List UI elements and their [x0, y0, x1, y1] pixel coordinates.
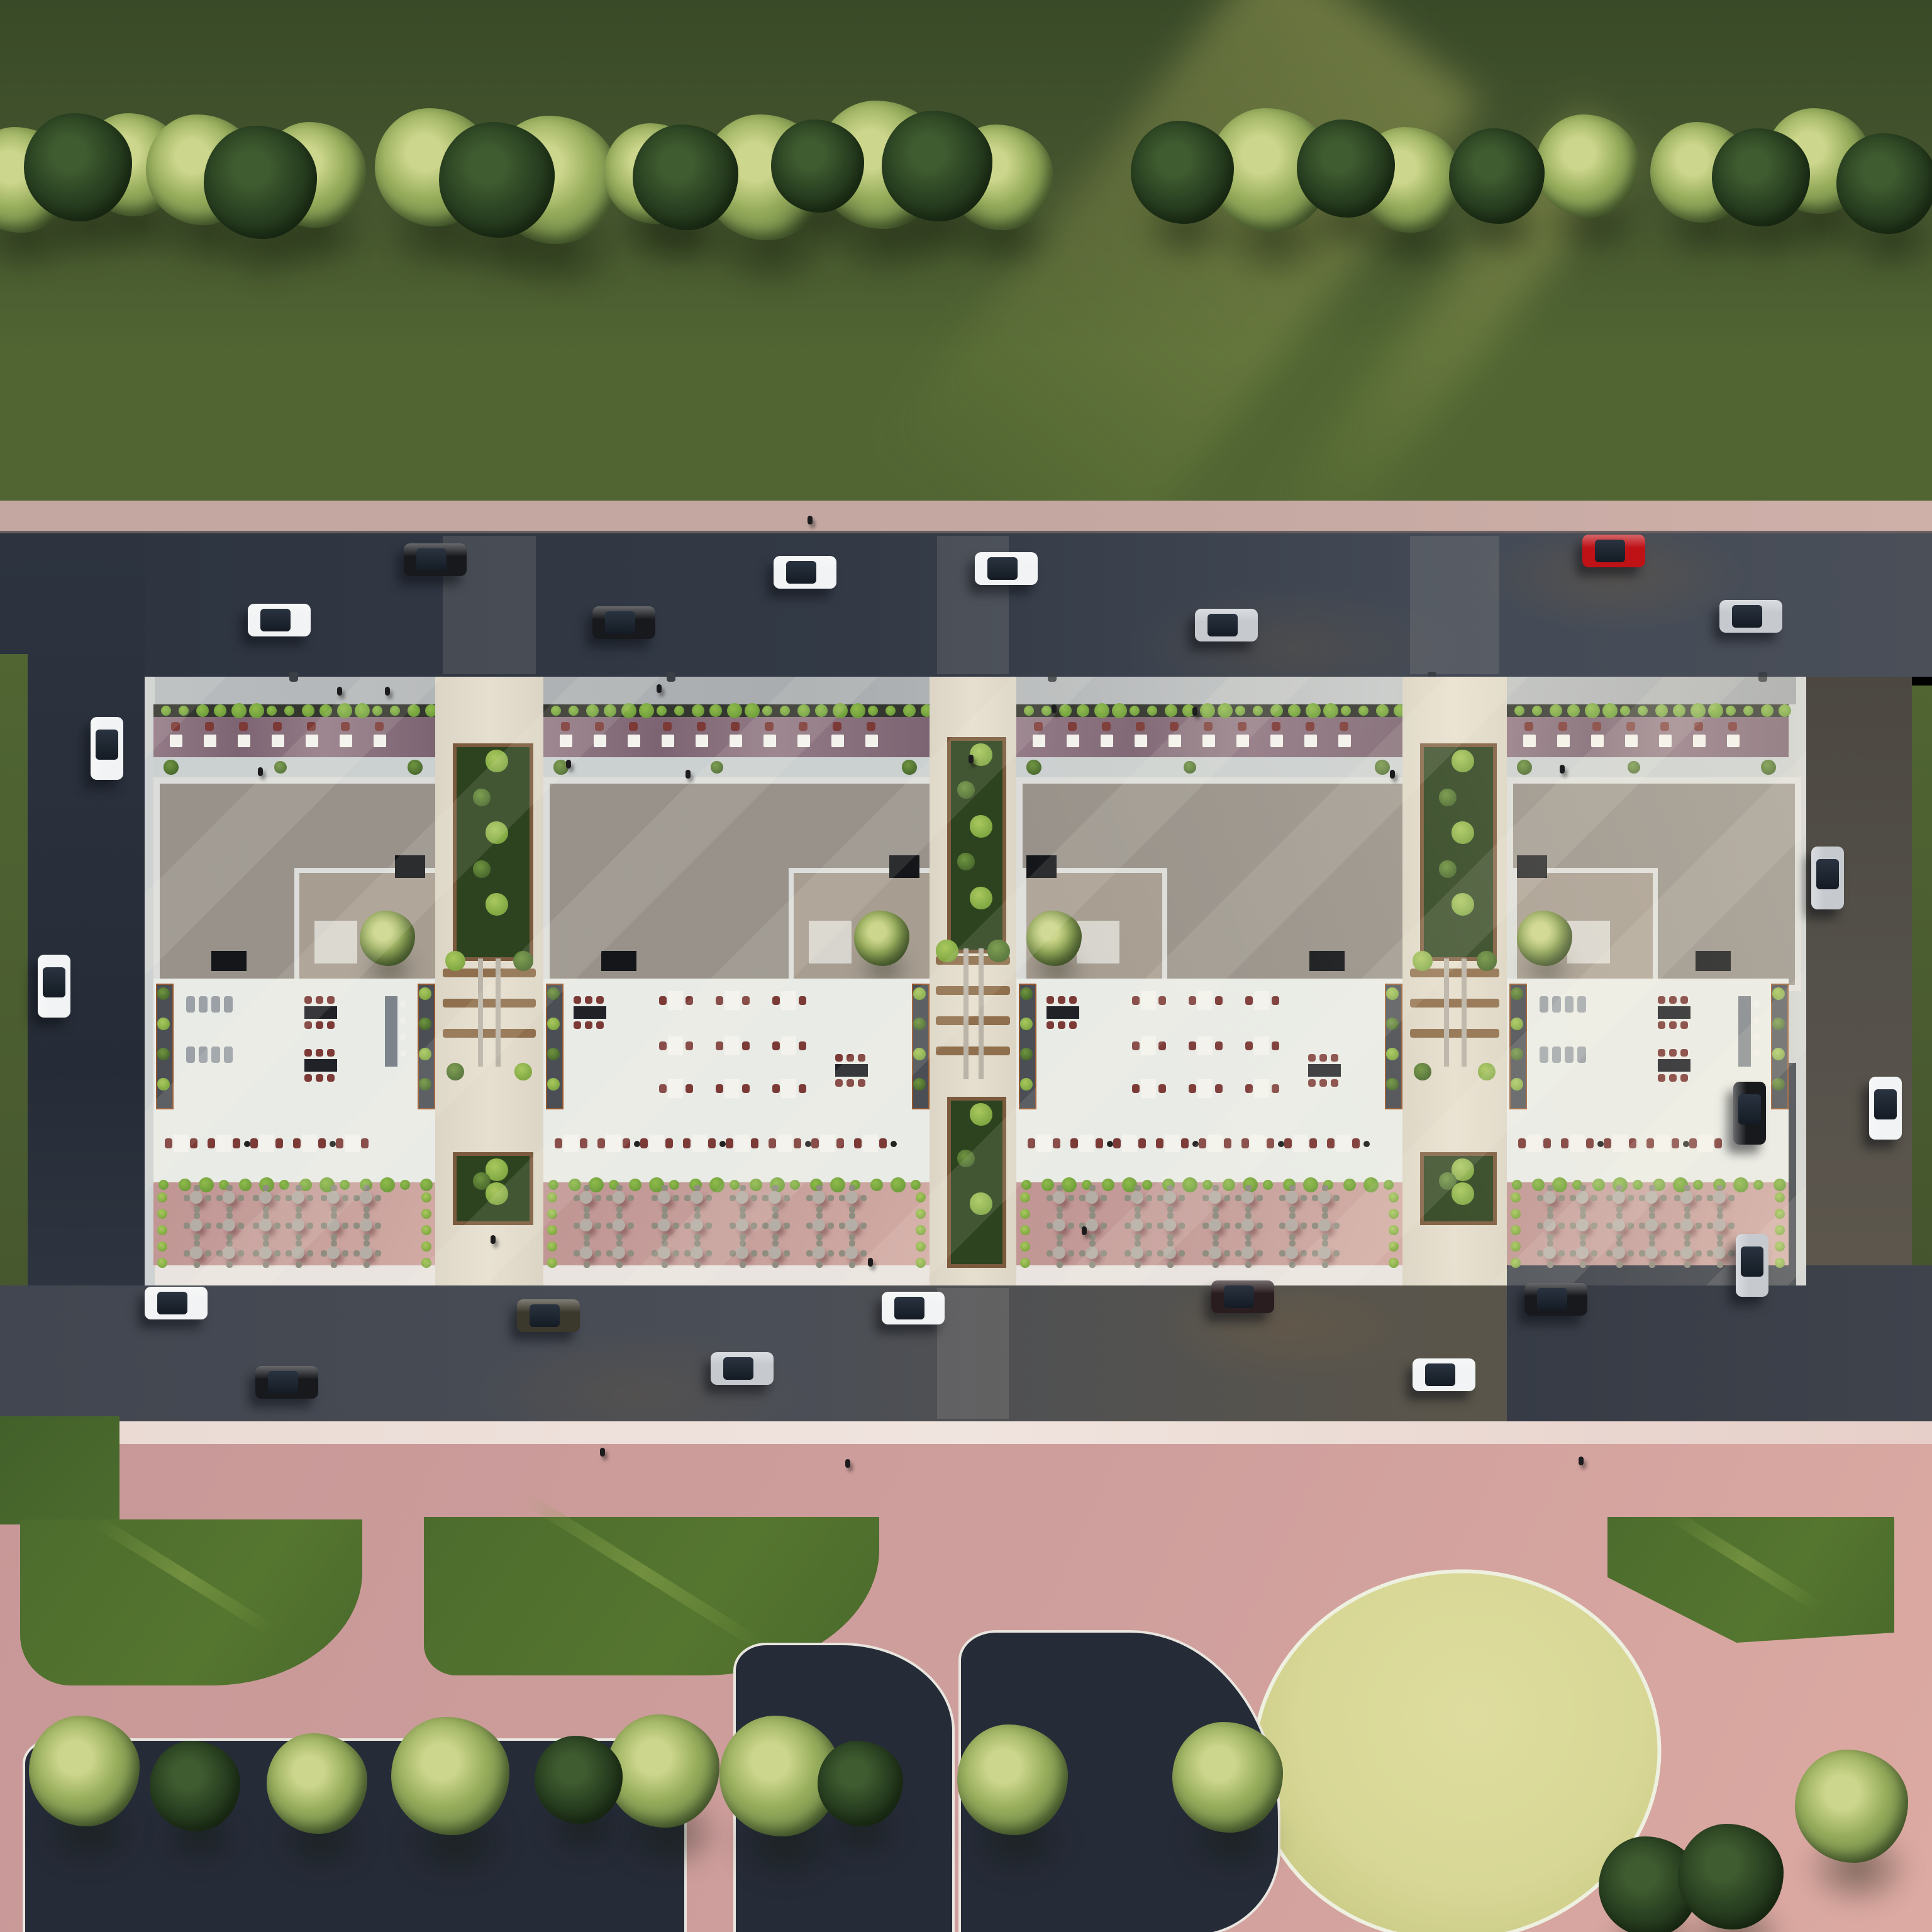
balcony-table: [763, 735, 776, 747]
dining-hedge-bush: [1633, 1180, 1643, 1190]
patio-chair: [275, 1138, 283, 1148]
shrub: [1511, 1225, 1521, 1235]
shrub: [1020, 1241, 1030, 1252]
dining-chair: [1189, 1084, 1196, 1093]
terrace-chair: [585, 1021, 592, 1029]
dining-chair: [799, 1084, 806, 1093]
dining-seat: [628, 1223, 634, 1229]
balcony-hedge-bush: [408, 704, 420, 717]
lounger: [1577, 996, 1586, 1013]
terrace-chair: [304, 996, 312, 1004]
dining-seat: [1245, 1185, 1251, 1191]
dining-seat: [828, 1195, 835, 1201]
shrub: [547, 1241, 557, 1252]
balcony-hedge-bush: [1779, 704, 1791, 717]
balcony-hedge-bush: [372, 706, 382, 716]
terrace-chair: [316, 1049, 323, 1057]
round-table: [1208, 1246, 1221, 1259]
terrace-chair: [327, 1049, 335, 1057]
roof-vent: [1696, 951, 1731, 971]
dining-seat: [850, 1240, 856, 1246]
shrub: [1775, 1241, 1785, 1252]
dining-hedge-bush: [790, 1180, 800, 1190]
round-table: [1576, 1246, 1589, 1259]
car: [1736, 1234, 1768, 1297]
dining-seat: [694, 1206, 701, 1213]
balcony-table: [797, 735, 810, 747]
shrub: [913, 1018, 926, 1030]
balcony-chair: [1558, 722, 1567, 731]
dining-chair: [1158, 1084, 1166, 1093]
shrub: [1772, 987, 1785, 1000]
dining-seat: [1334, 1250, 1340, 1257]
round-table: [223, 1246, 235, 1259]
fire-pit: [1683, 1141, 1689, 1147]
patio-chair: [233, 1138, 240, 1148]
balcony-hedge-bush: [1567, 704, 1580, 717]
spine-planter: [1420, 743, 1497, 961]
dining-hedge-bush: [1102, 1179, 1114, 1191]
dining-hedge-bush: [179, 1179, 191, 1191]
shrub: [419, 1018, 431, 1030]
light-post: [1048, 672, 1057, 682]
balcony-hedge-bush: [1550, 704, 1562, 717]
dining-table-white: [781, 991, 796, 1010]
dining-chair: [1189, 1041, 1196, 1050]
patio-chair: [1070, 1138, 1078, 1148]
dining-seat: [274, 1195, 280, 1201]
shrub: [408, 760, 423, 775]
dining-seat: [226, 1234, 233, 1240]
dining-seat: [595, 1250, 601, 1257]
balcony-table: [1625, 735, 1638, 747]
round-table: [1085, 1191, 1098, 1204]
bench: [936, 1016, 1010, 1025]
balcony-table: [204, 735, 216, 747]
mow-streak: [94, 1516, 274, 1635]
tree-light: [29, 1716, 140, 1826]
balcony-table: [594, 735, 606, 747]
balcony-hedge-bush: [674, 706, 684, 716]
car-windshield: [894, 1297, 924, 1319]
dining-seat: [1167, 1240, 1174, 1246]
round-table: [1208, 1191, 1221, 1204]
balcony-hedge-bush: [179, 706, 189, 716]
balcony-chair: [833, 722, 841, 731]
dining-seat: [762, 1223, 768, 1229]
dining-seat: [1167, 1262, 1174, 1268]
plaza-lawn-small: [0, 1416, 119, 1524]
shrub: [1478, 1063, 1496, 1080]
shrub: [1511, 1048, 1523, 1060]
car: [1524, 1283, 1587, 1316]
round-table: [658, 1191, 670, 1204]
dining-hedge-bush: [1592, 1179, 1605, 1191]
terrace-ledge: [543, 757, 930, 777]
shrub: [514, 1063, 532, 1080]
balcony-chair: [375, 722, 384, 731]
dining-seat: [1616, 1206, 1622, 1213]
car: [248, 604, 311, 636]
dining-seat: [772, 1185, 778, 1191]
fire-pit: [1597, 1141, 1604, 1147]
bar-stool: [400, 1001, 406, 1008]
balcony-hedge-bush: [797, 704, 810, 717]
dining-seat: [262, 1234, 269, 1240]
dining-seat: [1046, 1195, 1053, 1201]
shrub: [486, 821, 508, 844]
car: [711, 1352, 774, 1385]
dining-seat: [1167, 1234, 1174, 1240]
dining-seat: [1616, 1262, 1622, 1268]
balcony-chair: [663, 722, 672, 731]
terrace-chair: [304, 1021, 312, 1029]
terrace-table-black: [1046, 1006, 1079, 1019]
tree-dark: [1131, 121, 1234, 224]
dining-seat: [1146, 1195, 1152, 1201]
car: [404, 543, 467, 576]
car-windshield: [416, 548, 447, 571]
car: [517, 1299, 580, 1332]
shrub: [1389, 1225, 1399, 1235]
balcony-chair: [1102, 722, 1111, 731]
dining-hedge-bush: [279, 1180, 289, 1190]
round-table: [258, 1246, 271, 1259]
balcony-hedge-bush: [1673, 704, 1685, 717]
shrub: [445, 951, 465, 971]
dining-seat: [1135, 1240, 1141, 1246]
dining-seat: [295, 1262, 301, 1268]
shrub: [1775, 1192, 1785, 1202]
dining-hedge-bush: [891, 1177, 906, 1192]
dining-seat: [1547, 1213, 1553, 1219]
dining-seat: [1046, 1250, 1053, 1257]
dining-table-white: [1254, 1036, 1269, 1055]
terrace-chair: [304, 1049, 312, 1057]
planting-bed: [546, 984, 563, 1109]
shrub: [913, 987, 926, 1000]
dining-hedge-bush: [1062, 1177, 1077, 1192]
balcony-table: [1591, 735, 1604, 747]
shrub: [1511, 1078, 1523, 1091]
spine-planter: [453, 743, 533, 961]
car-windshield: [260, 609, 291, 631]
dining-seat: [216, 1250, 223, 1257]
dining-hedge-bush: [239, 1179, 252, 1191]
terrace-table-black: [304, 1006, 337, 1019]
shrub: [1020, 1018, 1033, 1030]
dining-seat: [1212, 1262, 1218, 1268]
dining-chair: [686, 1041, 693, 1050]
dining-seat: [861, 1223, 867, 1229]
round-table: [291, 1219, 304, 1231]
dining-seat: [1290, 1206, 1296, 1213]
balcony-table: [560, 735, 572, 747]
shrub: [1389, 1209, 1399, 1219]
dining-seat: [1547, 1234, 1553, 1240]
dining-seat: [1179, 1250, 1185, 1257]
tree-dark: [1712, 128, 1810, 226]
dining-seat: [1648, 1213, 1655, 1219]
dining-seat: [1057, 1213, 1063, 1219]
dining-seat: [595, 1195, 601, 1201]
car-windshield: [605, 611, 635, 634]
dining-seat: [1212, 1213, 1218, 1219]
balcony-hedge-bush: [885, 706, 896, 716]
shrub: [1020, 987, 1033, 1000]
patio-chair: [1604, 1138, 1611, 1148]
tree-dark: [24, 113, 132, 221]
dining-seat: [606, 1195, 613, 1201]
terrace-chair: [1308, 1054, 1316, 1062]
dining-seat: [295, 1206, 301, 1213]
round-table: [768, 1219, 780, 1231]
terrace-chair: [1331, 1054, 1338, 1062]
terrace-chair: [1058, 996, 1065, 1004]
terrace-table-black: [835, 1064, 868, 1077]
car-windshield: [1595, 540, 1625, 562]
balcony-hedge-bush: [1708, 703, 1723, 718]
dining-seat: [574, 1223, 580, 1229]
balcony-table: [1202, 735, 1215, 747]
round-table: [1241, 1246, 1253, 1259]
dining-seat: [184, 1195, 190, 1201]
car: [1413, 1358, 1475, 1391]
balcony-hedge-bush: [302, 704, 314, 717]
shrub: [1477, 951, 1497, 971]
dining-seat: [1290, 1185, 1296, 1191]
balcony-table: [730, 735, 742, 747]
balcony-hedge-bush: [390, 706, 400, 716]
terrace-chair: [1319, 1054, 1327, 1062]
dining-seat: [1580, 1206, 1586, 1213]
bench-rail: [496, 958, 501, 1067]
dining-seat: [807, 1195, 813, 1201]
terrace-chair: [327, 1021, 335, 1029]
dining-seat: [1089, 1206, 1096, 1213]
dining-seat: [861, 1195, 867, 1201]
patio-chair: [1309, 1138, 1317, 1148]
dining-seat: [285, 1250, 291, 1257]
dining-table-white: [1197, 1036, 1213, 1055]
bar-stool: [1753, 1034, 1760, 1040]
dining-seat: [1570, 1223, 1576, 1229]
round-table: [1612, 1219, 1624, 1231]
round-table: [1241, 1191, 1253, 1204]
shrub: [421, 1225, 431, 1235]
dining-seat: [1580, 1185, 1586, 1191]
balcony-hedge-bush: [639, 703, 654, 718]
patio-chair: [1156, 1138, 1163, 1148]
shrub: [916, 1241, 926, 1252]
dining-chair: [1158, 1041, 1166, 1050]
dining-hedge-bush: [1263, 1180, 1273, 1190]
planting-bed: [418, 984, 435, 1109]
dining-seat: [1079, 1250, 1085, 1257]
dining-seat: [1648, 1185, 1655, 1191]
dining-hedge-bush: [1182, 1177, 1197, 1192]
balcony-table: [662, 735, 674, 747]
shrub: [1438, 860, 1456, 878]
terrace-ledge: [1507, 757, 1789, 777]
dining-chair: [1272, 996, 1279, 1005]
balcony-hedge-bush: [161, 706, 171, 716]
balcony-hedge-bush: [745, 703, 760, 718]
tree-light: [606, 1714, 719, 1828]
dining-chair: [1189, 996, 1196, 1005]
balcony-table: [1067, 735, 1079, 747]
dining-seat: [262, 1262, 269, 1268]
patio-chair: [1267, 1138, 1274, 1148]
plaza-sidewalk: [0, 1421, 1932, 1444]
terrace-table-black: [304, 1059, 337, 1072]
balcony-hedge-bush: [850, 703, 865, 718]
dining-seat: [783, 1223, 789, 1229]
shrub: [486, 1182, 508, 1204]
car-windshield: [1874, 1089, 1897, 1119]
dining-hedge-bush: [730, 1180, 740, 1190]
patio-table: [692, 1135, 707, 1152]
car-windshield: [96, 730, 118, 760]
balcony-hedge-bush: [267, 706, 277, 716]
dining-seat: [1068, 1223, 1074, 1229]
dining-seat: [762, 1250, 768, 1257]
tree-dark: [204, 126, 317, 239]
terrace-table-black: [1658, 1059, 1690, 1072]
shrub: [547, 1225, 557, 1235]
terrace-chair: [596, 1021, 604, 1029]
balcony-hedge-bush: [214, 704, 226, 717]
bench-rail: [1461, 958, 1466, 1067]
pedestrian: [1192, 707, 1197, 716]
terrace-chair: [1669, 996, 1677, 1004]
pedestrian: [686, 770, 691, 779]
lounger: [211, 996, 220, 1013]
patio-chair: [1181, 1138, 1189, 1148]
dining-seat: [772, 1213, 778, 1219]
dining-seat: [739, 1240, 745, 1246]
dining-seat: [194, 1185, 200, 1191]
roof-vent: [211, 951, 247, 971]
dining-seat: [739, 1262, 745, 1268]
dining-seat: [772, 1262, 778, 1268]
dining-seat: [584, 1213, 590, 1219]
dining-seat: [1537, 1195, 1543, 1201]
round-table: [1576, 1191, 1589, 1204]
light-post: [667, 672, 675, 682]
pedestrian: [657, 684, 662, 693]
car: [592, 606, 655, 639]
shrub: [1389, 1258, 1399, 1268]
dining-seat: [1334, 1195, 1340, 1201]
dining-seat: [706, 1250, 712, 1257]
tree-dark: [882, 111, 992, 221]
dining-seat: [584, 1240, 590, 1246]
balcony-hedge-bush: [1532, 706, 1542, 716]
shrub: [1020, 1192, 1030, 1202]
car-windshield: [268, 1371, 298, 1394]
dining-seat: [817, 1234, 823, 1240]
dining-table-white: [1141, 991, 1156, 1010]
round-table: [768, 1191, 780, 1204]
roof-pad: [1567, 921, 1610, 963]
terrace-chair: [304, 1074, 312, 1082]
dining-seat: [729, 1223, 735, 1229]
terrace-chair: [316, 1021, 323, 1029]
mow-streak: [523, 1493, 762, 1648]
balcony-hedge-bush: [249, 703, 264, 718]
car: [1211, 1280, 1274, 1313]
dining-seat: [1256, 1223, 1262, 1229]
patio-chair: [1224, 1138, 1231, 1148]
dining-chair: [659, 1084, 667, 1093]
shrub: [1451, 821, 1474, 844]
tree-light: [391, 1717, 509, 1835]
dining-table-white: [668, 991, 683, 1010]
terrace-chair: [1658, 1074, 1665, 1082]
dining-seat: [684, 1223, 691, 1229]
pedestrian: [808, 516, 813, 525]
dining-seat: [1290, 1240, 1296, 1246]
dining-seat: [1245, 1213, 1251, 1219]
balcony-hedge-bush: [657, 706, 667, 716]
balcony-hedge-bush: [1059, 704, 1072, 717]
round-table: [1612, 1191, 1624, 1204]
balcony-hedge-bush: [355, 703, 370, 718]
patio-chair: [1689, 1138, 1697, 1148]
shrub: [157, 1048, 170, 1060]
pedestrian: [385, 687, 390, 696]
dining-chair: [772, 1084, 780, 1093]
shrub: [473, 860, 491, 878]
dining-seat: [662, 1262, 668, 1268]
car: [1869, 1077, 1902, 1140]
dining-chair: [1245, 1041, 1253, 1050]
tree-dark: [439, 122, 555, 238]
dining-seat: [1301, 1250, 1307, 1257]
balcony-chair: [171, 722, 180, 731]
patio-chair: [318, 1138, 326, 1148]
dining-seat: [729, 1250, 735, 1257]
shrub: [1020, 1048, 1033, 1060]
patio-table: [1207, 1135, 1223, 1152]
balcony-chair: [341, 722, 350, 731]
patio-chair: [683, 1138, 691, 1148]
dining-seat: [817, 1206, 823, 1213]
balcony-table: [1304, 735, 1317, 747]
dining-seat: [706, 1195, 712, 1201]
terrace-chair: [847, 1079, 854, 1087]
shrub: [1772, 1048, 1785, 1060]
terrace-chair: [835, 1054, 843, 1062]
round-table: [768, 1246, 780, 1259]
shrub: [1386, 987, 1399, 1000]
dining-seat: [238, 1195, 244, 1201]
dining-seat: [662, 1234, 668, 1240]
sidewalk-top: [0, 501, 1932, 533]
shrub: [1020, 1078, 1033, 1091]
dining-chair: [716, 1084, 723, 1093]
dining-seat: [1212, 1185, 1218, 1191]
balcony-table: [1135, 735, 1147, 747]
tree-light: [1795, 1750, 1908, 1863]
balcony-chair: [1136, 722, 1145, 731]
dining-seat: [662, 1206, 668, 1213]
terrace-chair: [316, 996, 323, 1004]
dining-seat: [1256, 1250, 1262, 1257]
dining-seat: [1135, 1213, 1141, 1219]
dining-seat: [783, 1250, 789, 1257]
